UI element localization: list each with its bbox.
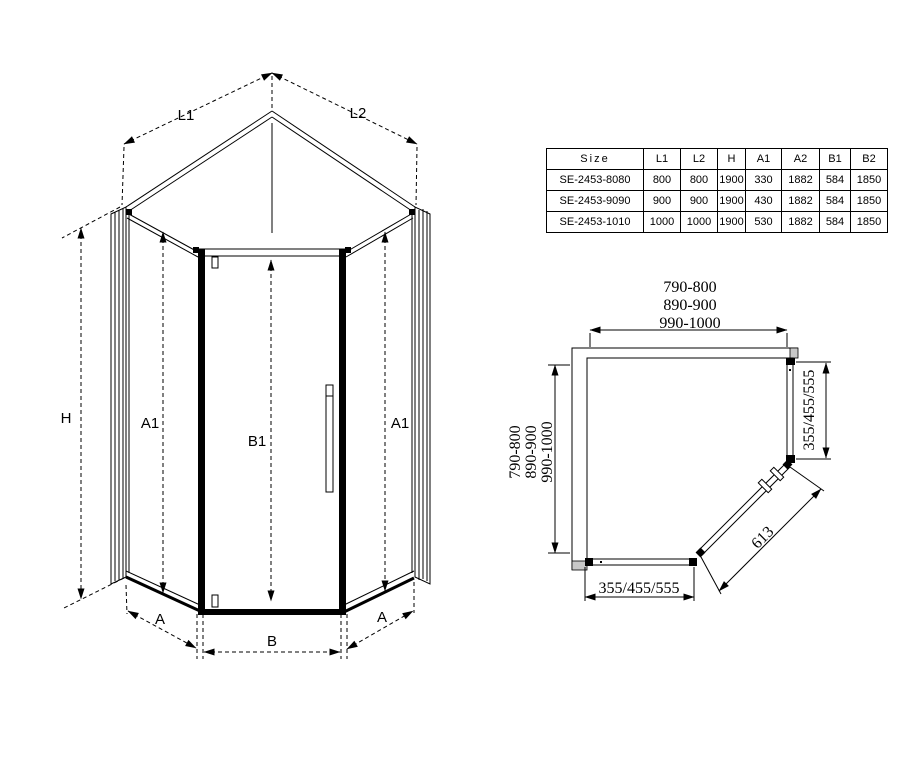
plan-top-width-option-3: 990-1000	[659, 315, 720, 332]
table-cell: 1900	[718, 191, 746, 212]
dim-l2-label: L2	[350, 105, 367, 122]
iso-view: L1 L2 H A1 B1 A1 A	[61, 73, 430, 659]
iso-dim-l2: L2	[272, 73, 417, 205]
model-name: SE-2453-1010	[547, 212, 644, 233]
table-cell: 430	[746, 191, 782, 212]
table-cell: 900	[681, 191, 718, 212]
col-header-a1: A1	[746, 149, 782, 170]
dim-a-left-label: A	[155, 611, 165, 628]
plan-dim-front-panel-bottom: 355/455/555	[585, 567, 694, 601]
table-cell: 1000	[644, 212, 681, 233]
table-cell: 584	[820, 212, 851, 233]
plan-left-depth-option-2: 890-900	[523, 425, 540, 478]
iso-dim-a1-left: A1	[141, 232, 163, 593]
iso-door-handle	[326, 385, 333, 492]
plan-view: 790-800 890-900 990-1000 790-800 890-900…	[507, 279, 831, 601]
plan-door-width: 613	[748, 523, 777, 552]
dim-l1-label: L1	[178, 107, 195, 124]
iso-right-panel	[344, 213, 414, 612]
table-cell: 800	[644, 170, 681, 191]
table-cell: 1900	[718, 170, 746, 191]
size-table-row: SE-2453-9090 900 900 1900 430 1882 584 1…	[547, 191, 888, 212]
iso-dim-a-left: A	[126, 585, 197, 659]
iso-door	[198, 249, 346, 615]
table-cell: 900	[644, 191, 681, 212]
table-cell: 1850	[851, 191, 888, 212]
table-cell: 1850	[851, 170, 888, 191]
size-table-row: SE-2453-1010 1000 1000 1900 530 1882 584…	[547, 212, 888, 233]
table-cell: 584	[820, 191, 851, 212]
table-cell: 1882	[782, 170, 820, 191]
table-cell: 330	[746, 170, 782, 191]
size-table: Size L1 L2 H A1 A2 B1 B2 SE-2453-8080 80…	[546, 148, 888, 233]
size-table-row: SE-2453-8080 800 800 1900 330 1882 584 1…	[547, 170, 888, 191]
plan-dim-depth-left: 790-800 890-900 990-1000	[507, 365, 570, 553]
table-cell: 800	[681, 170, 718, 191]
plan-front-panel-size: 355/455/555	[599, 580, 680, 597]
iso-dim-h: H	[61, 207, 124, 609]
col-header-l1: L1	[644, 149, 681, 170]
dim-a-right-label: A	[377, 609, 387, 626]
plan-top-wall-end-cap	[790, 348, 798, 358]
shower-enclosure-drawing-page: L1 L2 H A1 B1 A1 A	[0, 0, 901, 770]
plan-dim-side-panel-right: 355/455/555	[796, 362, 831, 459]
plan-right-panel	[786, 358, 795, 463]
table-cell: 1900	[718, 212, 746, 233]
table-cell: 1000	[681, 212, 718, 233]
table-cell: 1850	[851, 212, 888, 233]
col-header-size: Size	[547, 149, 644, 170]
table-cell: 584	[820, 170, 851, 191]
plan-door-handle	[758, 467, 783, 492]
dim-h-label: H	[61, 410, 72, 427]
dim-b-label: B	[267, 633, 277, 650]
col-header-b2: B2	[851, 149, 888, 170]
plan-top-width-option-1: 790-800	[663, 279, 716, 296]
plan-left-depth-option-1: 790-800	[507, 425, 524, 478]
plan-bottom-panel	[585, 558, 697, 566]
col-header-a2: A2	[782, 149, 820, 170]
iso-dim-a1-right: A1	[385, 232, 409, 591]
model-name: SE-2453-9090	[547, 191, 644, 212]
plan-left-depth-option-3: 990-1000	[539, 421, 556, 482]
iso-left-panel	[126, 213, 200, 611]
plan-dim-width-top: 790-800 890-900 990-1000	[590, 279, 787, 347]
iso-dim-b1: B1	[248, 260, 271, 601]
model-name: SE-2453-8080	[547, 170, 644, 191]
table-cell: 530	[746, 212, 782, 233]
table-cell: 1882	[782, 191, 820, 212]
iso-dim-b: B	[203, 614, 341, 659]
iso-left-wall	[111, 207, 126, 584]
table-cell: 1882	[782, 212, 820, 233]
technical-drawing: L1 L2 H A1 B1 A1 A	[0, 0, 901, 770]
dim-a1-left-label: A1	[141, 415, 159, 432]
plan-side-panel-size: 355/455/555	[801, 370, 818, 451]
size-table-header-row: Size L1 L2 H A1 A2 B1 B2	[547, 149, 888, 170]
dim-a1-right-label: A1	[391, 415, 409, 432]
col-header-h: H	[718, 149, 746, 170]
iso-top-frame	[126, 111, 415, 257]
col-header-l2: L2	[681, 149, 718, 170]
col-header-b1: B1	[820, 149, 851, 170]
dim-b1-label: B1	[248, 433, 266, 450]
iso-right-wall	[415, 207, 430, 584]
iso-dim-l1: L1	[122, 73, 272, 205]
plan-top-width-option-2: 890-900	[663, 297, 716, 314]
